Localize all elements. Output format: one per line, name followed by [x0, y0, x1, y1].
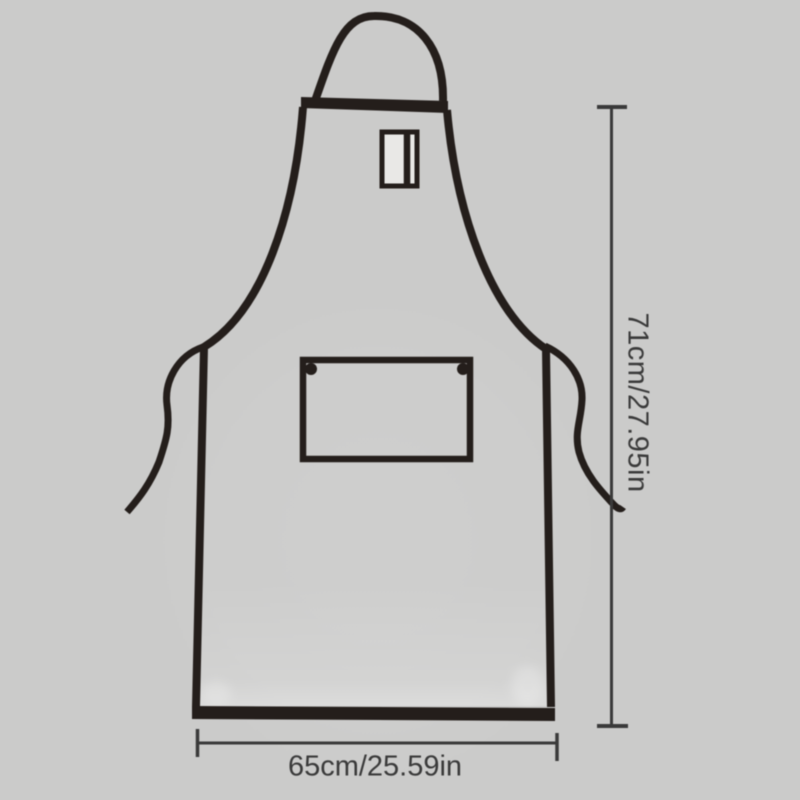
svg-text:71cm/27.95in: 71cm/27.95in: [622, 313, 654, 493]
svg-text:65cm/25.59in: 65cm/25.59in: [288, 751, 462, 783]
